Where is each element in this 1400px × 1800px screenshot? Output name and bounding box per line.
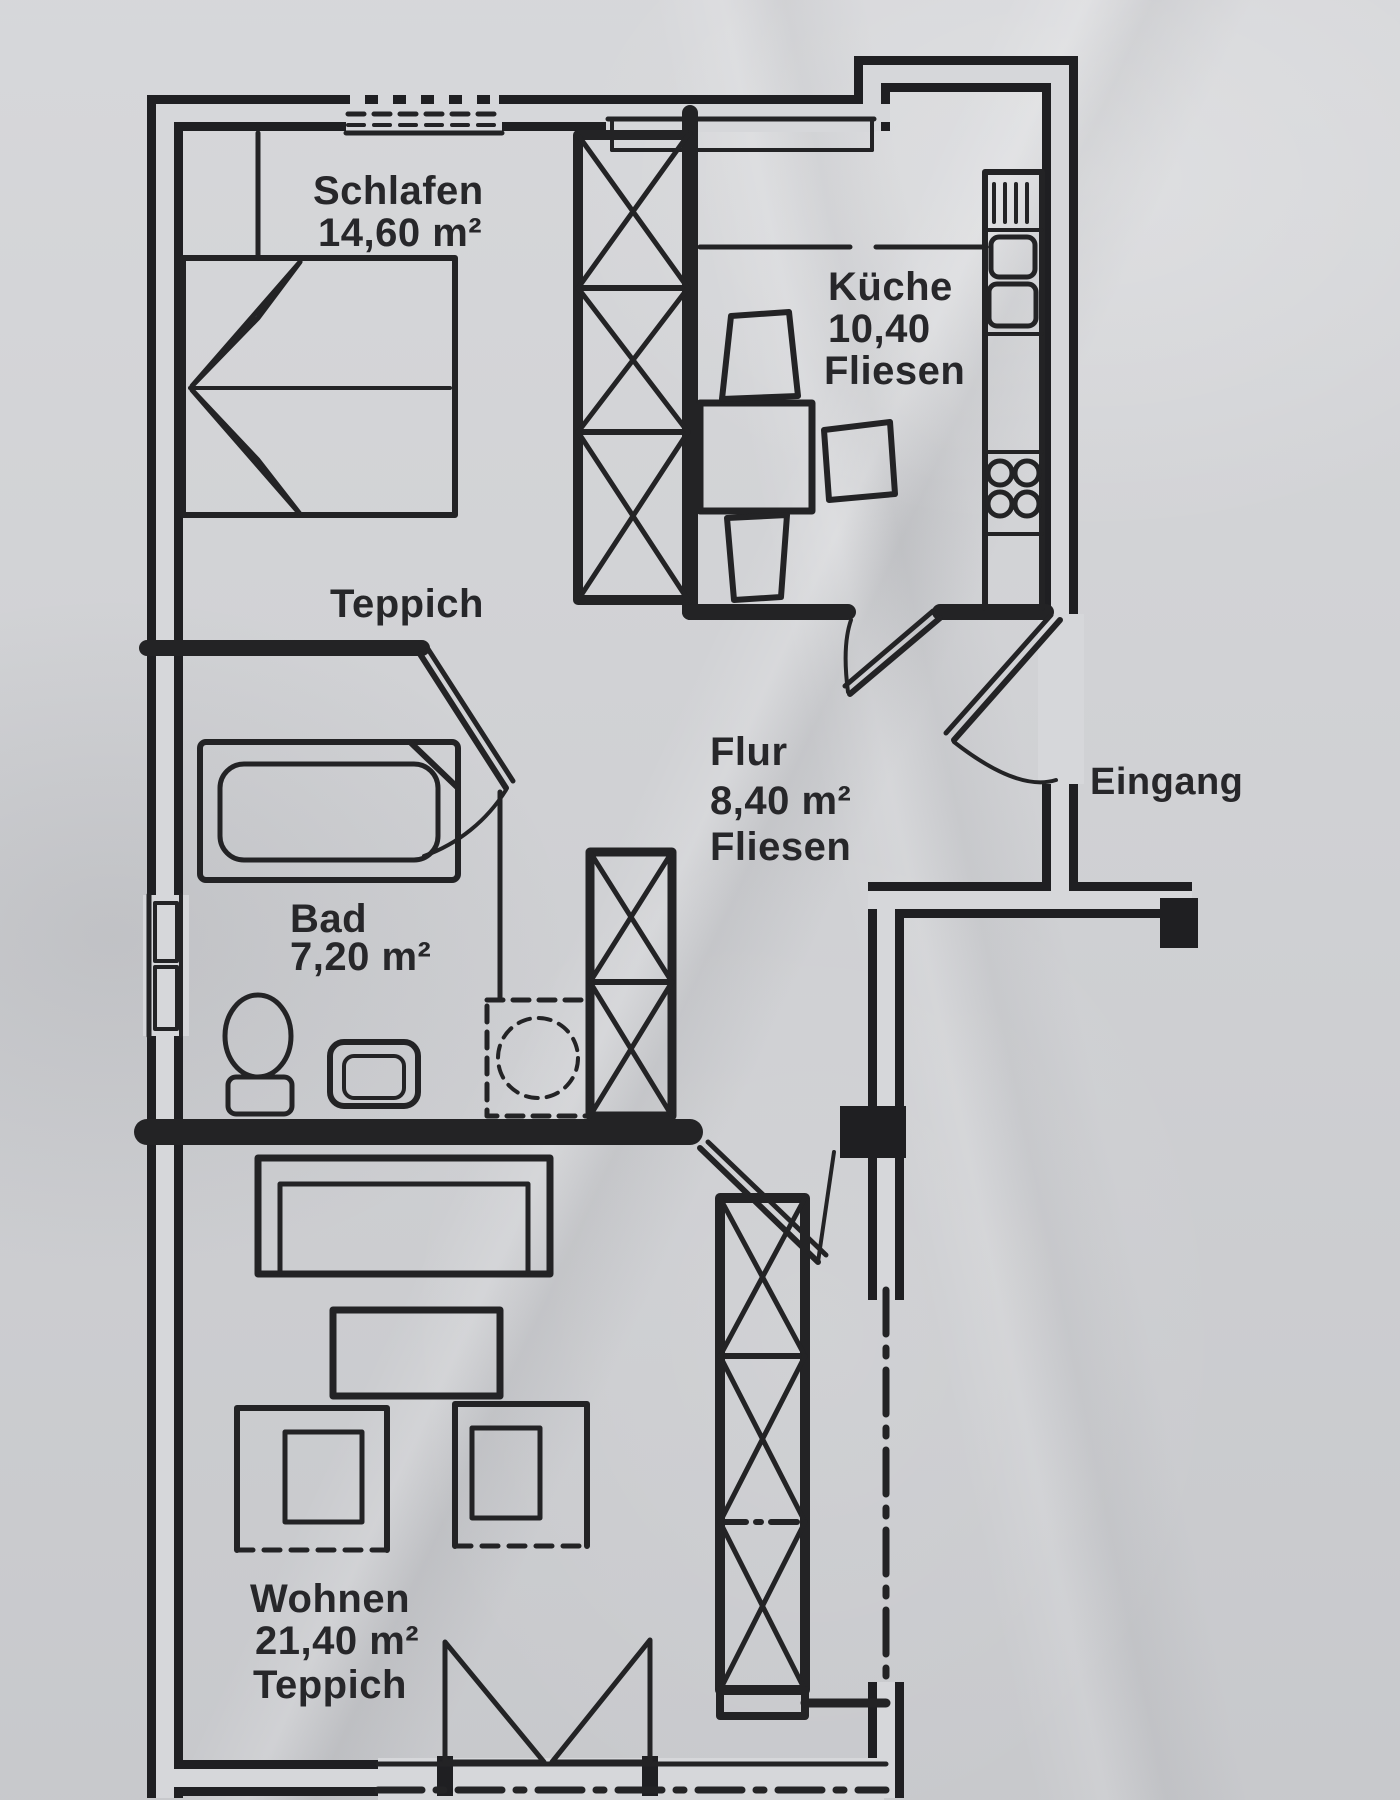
washing-machine-icon: [487, 1000, 590, 1116]
entrance-wall-stub: [1160, 898, 1198, 948]
room-area-kueche: 10,40: [828, 308, 931, 350]
washbasin-icon: [330, 1042, 418, 1106]
wall-piers: [437, 898, 1198, 1796]
armchair-icon-left: [237, 1408, 387, 1550]
room-area-wohnen: 21,40 m²: [255, 1620, 419, 1662]
room-floor-flur: Fliesen: [710, 826, 851, 868]
room-label-bad: Bad: [290, 898, 367, 940]
hall-wardrobe-icon: [590, 852, 672, 1116]
room-label-kueche: Küche: [828, 266, 953, 308]
room-floor-kueche: Fliesen: [824, 350, 965, 392]
drainer-icon: [994, 184, 1027, 222]
room-area-flur: 8,40 m²: [710, 780, 851, 822]
sink-icon: [991, 237, 1035, 277]
floor-plan-photo: Schlafen 14,60 m² Teppich Küche 10,40 Fl…: [0, 0, 1400, 1800]
sofa-icon: [258, 1158, 550, 1274]
balcony-double-door-icon: [445, 1640, 650, 1762]
room-floor-wohnen: Teppich: [253, 1664, 407, 1706]
coffee-table-icon: [333, 1310, 500, 1396]
kitchen-door-icon: [845, 611, 940, 694]
bedroom-wardrobe-icon: [578, 135, 688, 600]
corridor-pier: [840, 1106, 906, 1158]
dining-table-icon: [700, 403, 812, 511]
kitchen-counter-icon: [985, 172, 1042, 608]
room-area-bad: 7,20 m²: [290, 936, 431, 978]
room-floor-schlafen: Teppich: [330, 583, 484, 625]
living-room-wardrobe-icon: [720, 1198, 886, 1716]
room-area-schlafen: 14,60 m²: [318, 212, 482, 254]
cooktop-icon: [988, 461, 1039, 516]
floor-plan-drawing: [0, 0, 1400, 1800]
armchair-icon-right: [455, 1404, 587, 1546]
entrance-label: Eingang: [1090, 763, 1243, 803]
bathtub-icon: [200, 742, 458, 880]
room-label-wohnen: Wohnen: [250, 1578, 410, 1620]
room-label-flur: Flur: [710, 731, 788, 773]
toilet-icon: [225, 995, 292, 1114]
room-label-schlafen: Schlafen: [313, 170, 484, 212]
